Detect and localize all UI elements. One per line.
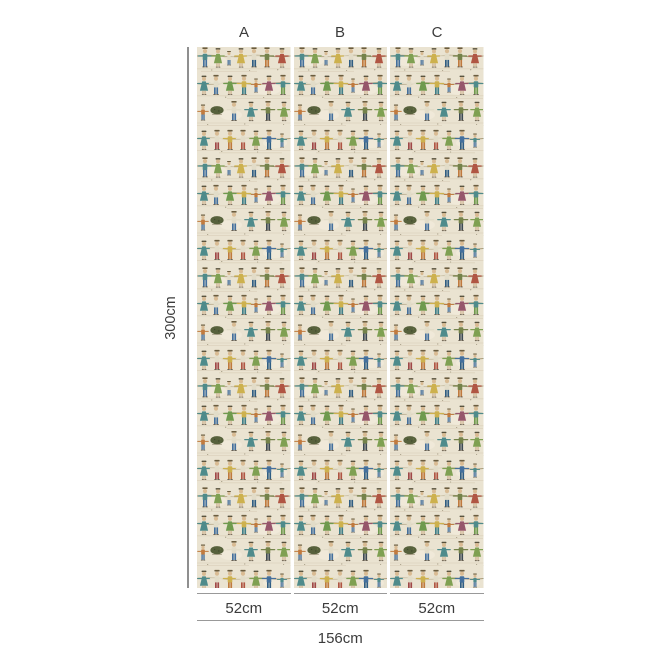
product-dimension-diagram: A B C 300cm 52cm 52cm 52cm 156cm bbox=[0, 0, 665, 665]
wallpaper-panel-a bbox=[197, 47, 291, 588]
panel-column-label-a: A bbox=[197, 24, 291, 41]
panel-width-line-c bbox=[390, 593, 484, 594]
wallpaper-panels bbox=[197, 47, 484, 588]
panel-width-label-a: 52cm bbox=[197, 600, 291, 617]
total-width-line bbox=[197, 620, 484, 621]
panel-column-label-b: B bbox=[293, 24, 387, 41]
wallpaper-panel-c bbox=[390, 47, 484, 588]
total-width-label: 156cm bbox=[197, 630, 484, 647]
panel-width-line-a bbox=[197, 593, 291, 594]
wallpaper-panel-b bbox=[294, 47, 388, 588]
height-dimension-label: 300cm bbox=[163, 296, 179, 340]
vertical-dimension-line bbox=[187, 47, 189, 588]
panel-width-label-b: 52cm bbox=[294, 600, 388, 617]
panel-width-label-c: 52cm bbox=[390, 600, 484, 617]
panel-width-line-b bbox=[294, 593, 388, 594]
panel-column-label-c: C bbox=[390, 24, 484, 41]
